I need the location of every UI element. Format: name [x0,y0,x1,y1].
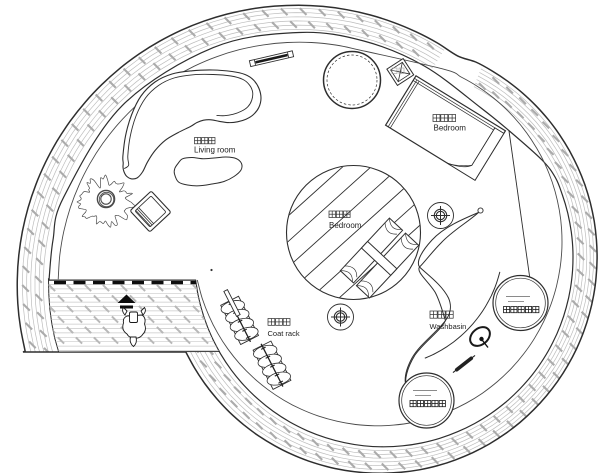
svg-text:Living room: Living room [194,146,236,155]
svg-text:Bedroom: Bedroom [329,221,362,230]
svg-text:Bedroom: Bedroom [434,124,467,133]
svg-text:Washbasin: Washbasin [430,322,467,331]
svg-text:Coat rack: Coat rack [268,329,300,338]
